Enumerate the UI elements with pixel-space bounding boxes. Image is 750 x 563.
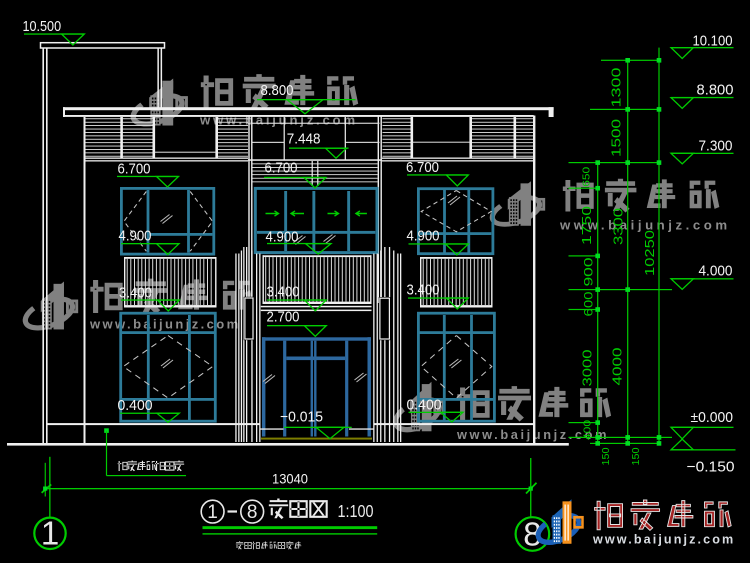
svg-text:www.baijunjz.com: www.baijunjz.com xyxy=(89,317,241,332)
svg-text:6.700: 6.700 xyxy=(406,159,439,176)
svg-text:150: 150 xyxy=(630,447,642,465)
svg-text:2.700: 2.700 xyxy=(267,309,300,326)
svg-text:400: 400 xyxy=(582,420,594,440)
svg-text:4.900: 4.900 xyxy=(407,228,440,245)
svg-text:8: 8 xyxy=(247,502,258,523)
svg-text:0.400: 0.400 xyxy=(118,397,153,414)
svg-text:www.baijunjz.com: www.baijunjz.com xyxy=(592,533,735,547)
svg-text:±0.000: ±0.000 xyxy=(691,409,734,426)
svg-text:8.800: 8.800 xyxy=(697,82,734,99)
svg-text:7.448: 7.448 xyxy=(287,130,321,147)
svg-text:600: 600 xyxy=(582,291,596,316)
svg-text:6.700: 6.700 xyxy=(118,161,151,178)
svg-text:3.400: 3.400 xyxy=(267,284,300,301)
svg-text:3000: 3000 xyxy=(581,349,595,386)
svg-text:1: 1 xyxy=(207,502,218,523)
svg-text:1: 1 xyxy=(41,515,59,552)
svg-text:1750: 1750 xyxy=(580,206,594,245)
svg-text:900: 900 xyxy=(582,257,596,286)
svg-text:10.500: 10.500 xyxy=(23,18,62,35)
svg-text:8.800: 8.800 xyxy=(261,82,294,99)
svg-text:4.900: 4.900 xyxy=(119,228,152,245)
svg-text:3.400: 3.400 xyxy=(407,282,440,299)
svg-text:1500: 1500 xyxy=(610,119,624,157)
svg-text:4.000: 4.000 xyxy=(699,263,733,280)
svg-text:1:100: 1:100 xyxy=(338,501,374,521)
svg-text:10.100: 10.100 xyxy=(693,33,733,50)
svg-text:650: 650 xyxy=(581,167,593,187)
svg-text:1300: 1300 xyxy=(610,67,624,107)
svg-text:150: 150 xyxy=(600,447,612,465)
svg-text:3.400: 3.400 xyxy=(119,285,152,302)
svg-text:6.700: 6.700 xyxy=(265,160,298,177)
svg-text:4000: 4000 xyxy=(611,347,625,385)
svg-text:7.300: 7.300 xyxy=(699,138,733,155)
svg-text:−0.150: −0.150 xyxy=(687,459,735,476)
svg-text:3300: 3300 xyxy=(612,208,626,245)
svg-text:−0.015: −0.015 xyxy=(280,409,323,426)
svg-text:10250: 10250 xyxy=(643,230,657,276)
svg-text:0.400: 0.400 xyxy=(407,397,442,414)
svg-text:13040: 13040 xyxy=(272,470,308,486)
